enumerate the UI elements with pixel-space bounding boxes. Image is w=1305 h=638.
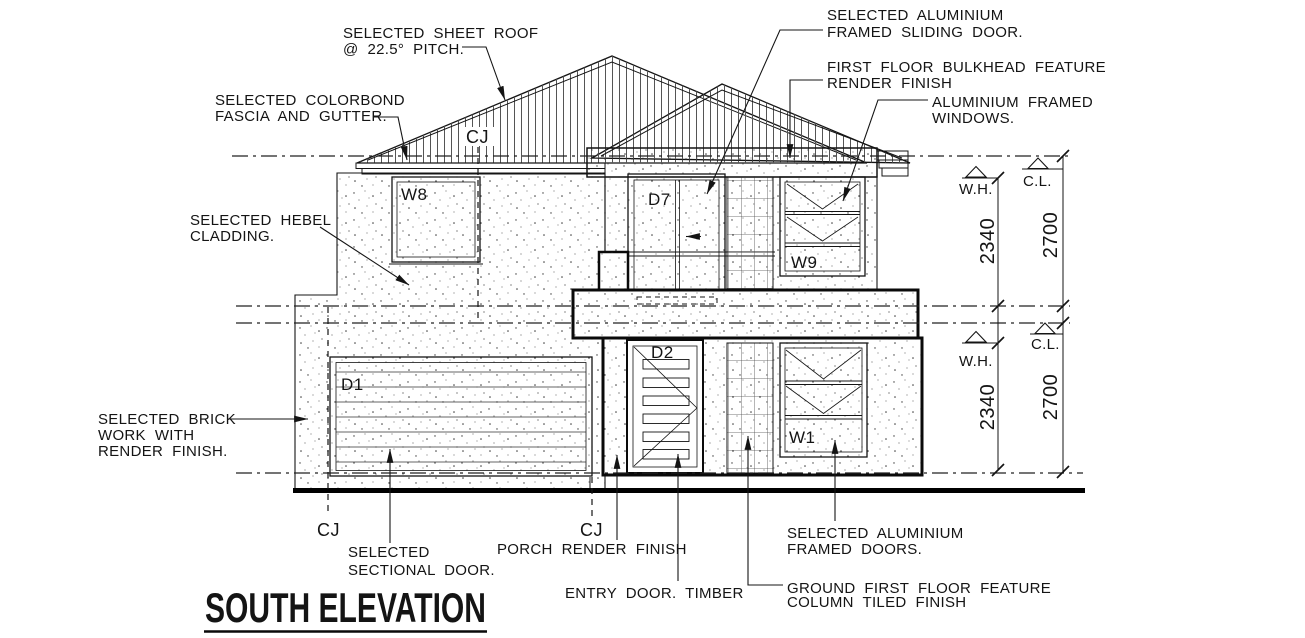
floor-slab-band-render <box>573 290 918 338</box>
callout-porch: PORCH RENDER FINISH <box>497 541 687 558</box>
callout-framed-doors-line2: FRAMED DOORS. <box>787 541 922 558</box>
tag-d1: D1 <box>341 375 364 394</box>
callout-fascia-line2: FASCIA AND GUTTER. <box>215 108 387 125</box>
callout-bulkhead-line1: FIRST FLOOR BULKHEAD FEATURE <box>827 59 1106 76</box>
callout-sectional-door-line2: SECTIONAL DOOR. <box>348 562 495 579</box>
callout-brickwork-line3: RENDER FINISH. <box>98 443 228 460</box>
tag-cj-porch: CJ <box>580 520 603 540</box>
lower-cl-dimension: 2700 <box>1040 374 1062 421</box>
callout-fascia-line1: SELECTED COLORBOND <box>215 92 405 109</box>
callout-feature-column-line2: COLUMN TILED FINISH <box>787 594 966 611</box>
tag-w9: W9 <box>791 253 818 272</box>
feature-column-lower <box>727 343 773 473</box>
upper-cl-dimension: 2700 <box>1040 212 1062 259</box>
tag-cj-left: CJ <box>317 520 340 540</box>
callout-sheet-roof-line2: @ 22.5° PITCH. <box>343 41 464 58</box>
callout-sheet-roof-line1: SELECTED SHEET ROOF <box>343 25 538 42</box>
callout-entry-door: ENTRY DOOR. TIMBER <box>565 585 744 602</box>
callout-cladding-line2: CLADDING. <box>190 228 274 245</box>
callout-brickwork-line2: WORK WITH <box>98 427 194 444</box>
callout-sliding-door-line2: FRAMED SLIDING DOOR. <box>827 24 1023 41</box>
callout-alum-windows-line2: WINDOWS. <box>932 110 1014 127</box>
drawing-title: SOUTH ELEVATION <box>205 584 486 631</box>
upper-wh-dimension: 2340 <box>977 218 999 265</box>
callout-sliding-door-line1: SELECTED ALUMINIUM <box>827 7 1004 24</box>
callout-alum-windows-line1: ALUMINIUM FRAMED <box>932 94 1093 111</box>
lower-wh-dimension: 2340 <box>977 384 999 431</box>
wall-left-render <box>295 173 605 490</box>
callout-sectional-door-line1: SELECTED <box>348 544 430 561</box>
balcony-pier-render <box>599 252 628 290</box>
lower-window-head-label: W.H. <box>959 353 993 370</box>
lower-ceiling-label: C.L. <box>1031 336 1060 353</box>
upper-ceiling-label: C.L. <box>1023 173 1052 190</box>
callout-cladding-line1: SELECTED HEBEL <box>190 212 331 229</box>
column-lower-tiles <box>727 343 773 473</box>
elevation-canvas: SELECTED SHEET ROOF @ 22.5° PITCH. SELEC… <box>0 0 1305 638</box>
tag-d7: D7 <box>648 190 671 209</box>
elevation-drawing-sheet: SELECTED SHEET ROOF @ 22.5° PITCH. SELEC… <box>0 0 1305 638</box>
drawing-title-block: SOUTH ELEVATION <box>204 584 487 632</box>
tag-cj-roof: CJ <box>466 127 489 147</box>
tag-d2: D2 <box>651 343 674 362</box>
bulkhead-band-render <box>587 148 877 177</box>
callout-bulkhead-line2: RENDER FINISH <box>827 75 952 92</box>
tag-w1: W1 <box>789 428 816 447</box>
upper-window-head-label: W.H. <box>959 181 993 198</box>
tag-w8: W8 <box>401 185 428 204</box>
callout-brickwork-line1: SELECTED BRICK <box>98 411 236 428</box>
callout-framed-doors-line1: SELECTED ALUMINIUM <box>787 525 964 542</box>
